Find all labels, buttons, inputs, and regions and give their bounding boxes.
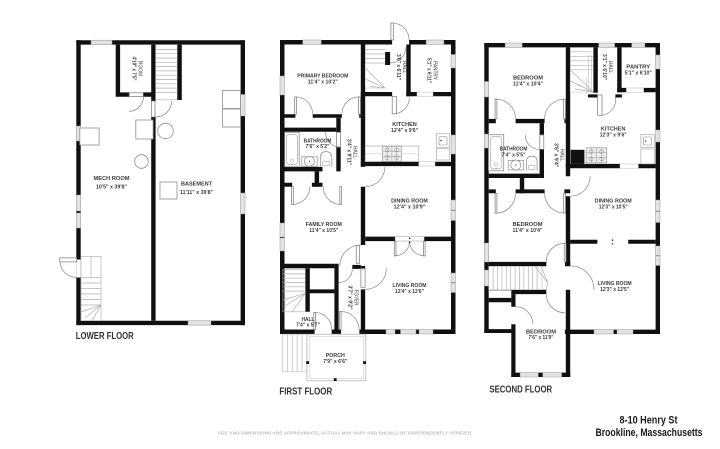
svg-text:12'4" x 12'6": 12'4" x 12'6": [395, 289, 425, 295]
svg-text:LOWER FLOOR: LOWER FLOOR: [76, 331, 134, 342]
svg-text:5'1" x 6'10": 5'1" x 6'10": [625, 70, 653, 76]
svg-text:Brookline, Massachusetts: Brookline, Massachusetts: [596, 427, 703, 439]
svg-text:11'11" x 39'8": 11'11" x 39'8": [180, 190, 214, 196]
svg-text:12'3" x 9'6": 12'3" x 9'6": [600, 133, 628, 139]
svg-text:11'4" x 10'4": 11'4" x 10'4": [513, 228, 544, 234]
svg-text:3'6" x 9'4": 3'6" x 9'4": [553, 143, 559, 168]
svg-text:11'4" x 10'5": 11'4" x 10'5": [309, 228, 339, 234]
svg-text:SIZE AND DIMENSIONS ARE APPROX: SIZE AND DIMENSIONS ARE APPROXIMATE, ACT…: [218, 431, 473, 436]
svg-text:PORCH: PORCH: [326, 353, 345, 359]
svg-text:SECOND FLOOR: SECOND FLOOR: [489, 384, 552, 395]
svg-text:12'3" x 10'5": 12'3" x 10'5": [599, 204, 629, 210]
svg-text:FIRST FLOOR: FIRST FLOOR: [279, 386, 332, 397]
svg-text:MECH ROOM: MECH ROOM: [94, 176, 130, 182]
svg-text:12'4" x 9'6": 12'4" x 9'6": [391, 128, 419, 134]
svg-text:11'4" x 10'2": 11'4" x 10'2": [308, 79, 339, 85]
svg-text:BASEMENT: BASEMENT: [181, 182, 213, 188]
svg-text:10'5" x 39'8": 10'5" x 39'8": [96, 185, 128, 191]
svg-text:7'4" x 5'5": 7'4" x 5'5": [502, 152, 527, 158]
svg-text:3'7" x 9'2": 3'7" x 9'2": [347, 286, 353, 311]
svg-text:3'4" x 9'11": 3'4" x 9'11": [345, 139, 351, 166]
svg-text:5'1" x 6'11": 5'1" x 6'11": [426, 58, 432, 83]
svg-text:3'1" x 6'10": 3'1" x 6'10": [601, 54, 607, 80]
svg-text:7'6" x 11'9": 7'6" x 11'9": [529, 335, 554, 341]
svg-text:4'10" x 7'5": 4'10" x 7'5": [130, 57, 136, 81]
svg-text:7'6" x 5'2": 7'6" x 5'2": [306, 144, 331, 150]
svg-text:12'3" x 12'5": 12'3" x 12'5": [600, 287, 630, 293]
svg-text:7'9" x 6'6": 7'9" x 6'6": [323, 359, 348, 365]
svg-text:8-10 Henry St: 8-10 Henry St: [620, 415, 678, 427]
svg-text:7'4" x 5'7": 7'4" x 5'7": [296, 323, 321, 329]
svg-text:11'4" x 10'4": 11'4" x 10'4": [513, 81, 544, 87]
svg-text:12'4" x 10'9": 12'4" x 10'9": [394, 204, 426, 210]
svg-text:3'6" x 6'11": 3'6" x 6'11": [395, 54, 401, 81]
